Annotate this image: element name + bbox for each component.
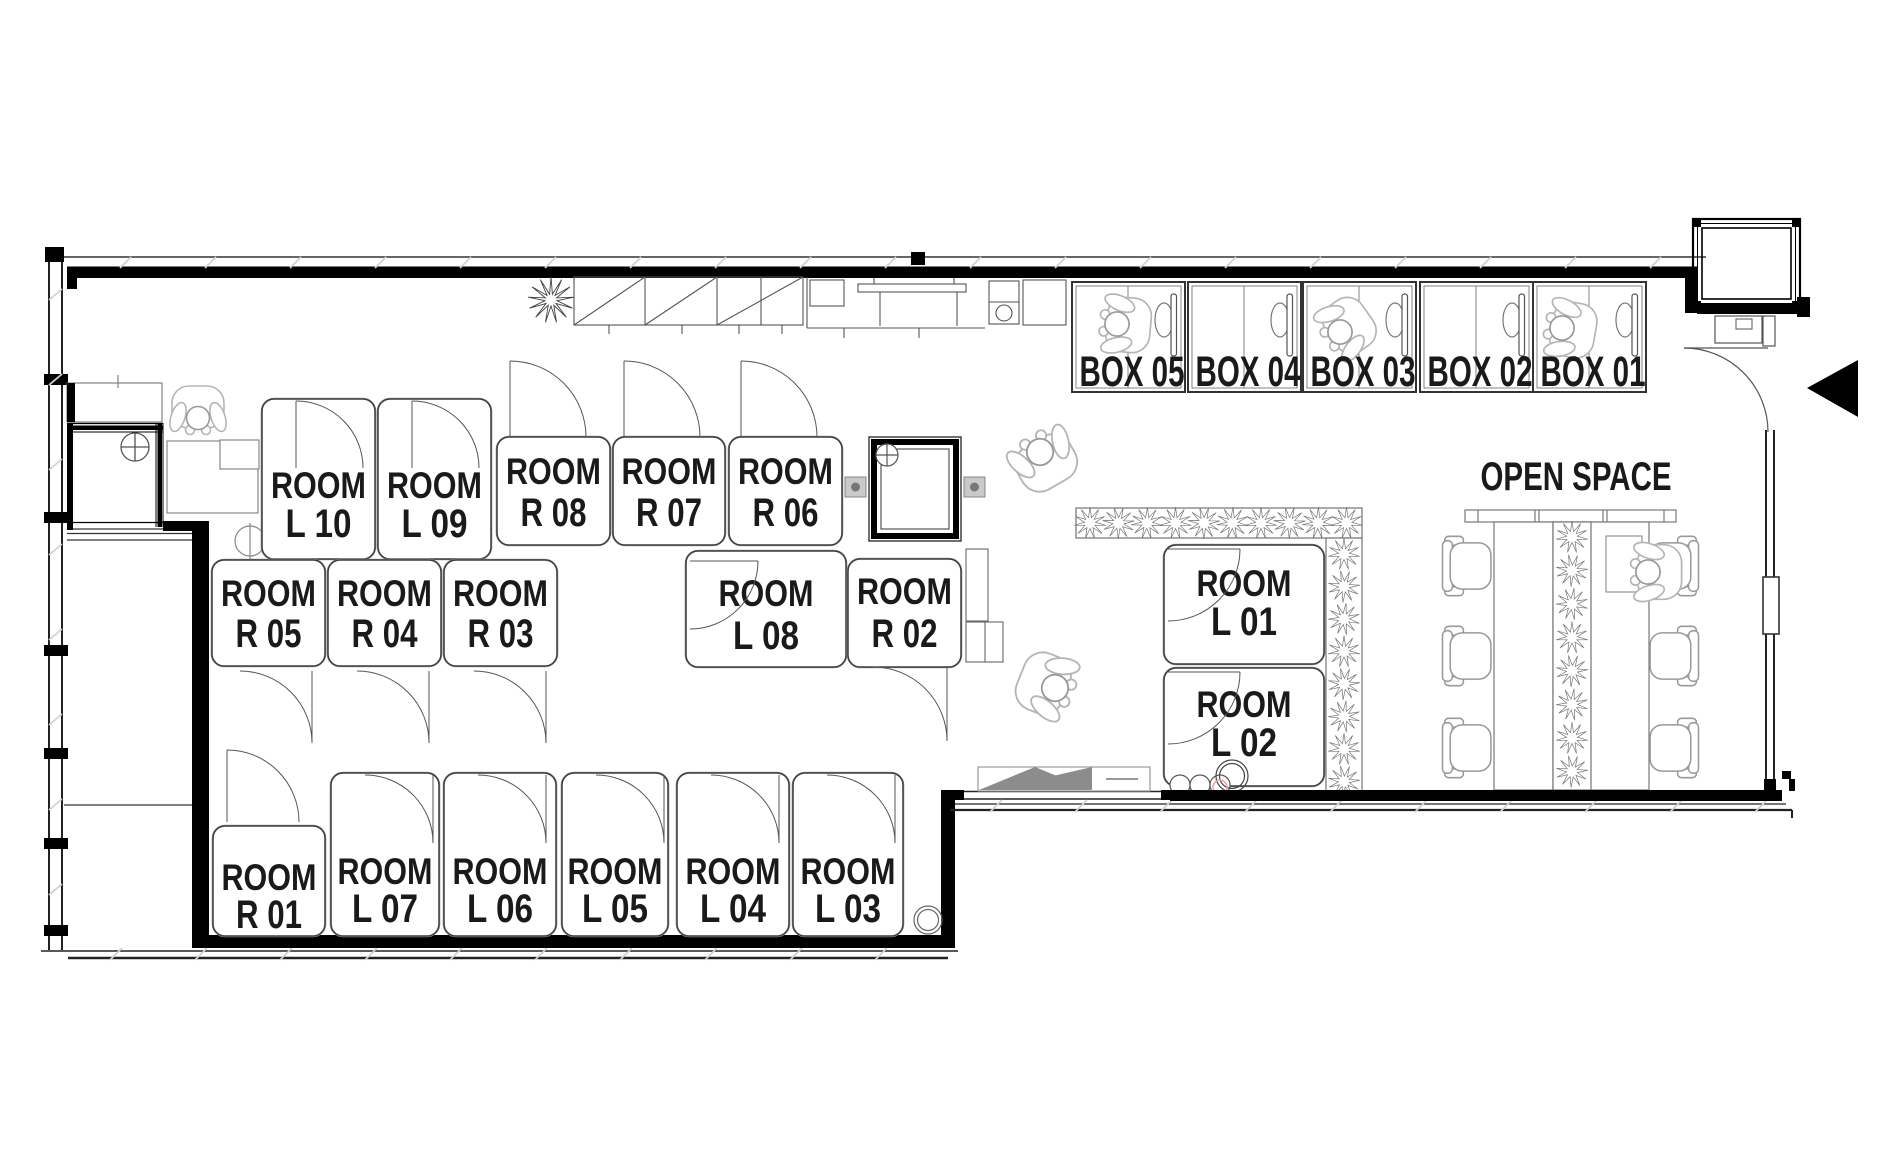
svg-text:L 07: L 07 [352,887,418,931]
svg-text:L 02: L 02 [1211,721,1277,765]
svg-text:ROOM: ROOM [222,857,317,898]
svg-text:R 04: R 04 [352,612,419,656]
svg-text:ROOM: ROOM [387,465,482,506]
svg-text:ROOM: ROOM [857,571,952,612]
svg-text:R 08: R 08 [521,491,587,535]
svg-text:L 05: L 05 [582,887,648,931]
svg-text:ROOM: ROOM [738,451,833,492]
svg-text:ROOM: ROOM [1197,563,1292,604]
svg-text:ROOM: ROOM [622,451,717,492]
svg-text:ROOM: ROOM [221,573,316,614]
svg-text:R 06: R 06 [753,491,819,535]
svg-text:L 09: L 09 [402,502,468,546]
svg-text:ROOM: ROOM [337,573,432,614]
svg-text:ROOM: ROOM [686,851,781,892]
svg-text:BOX 01: BOX 01 [1541,348,1646,396]
svg-text:ROOM: ROOM [506,451,601,492]
svg-text:ROOM: ROOM [1197,684,1292,725]
svg-text:R 03: R 03 [468,612,534,656]
svg-text:R 02: R 02 [872,612,938,656]
svg-text:BOX 03: BOX 03 [1311,348,1416,396]
svg-text:ROOM: ROOM [453,851,548,892]
svg-text:ROOM: ROOM [338,851,433,892]
svg-text:ROOM: ROOM [801,851,896,892]
svg-text:BOX 02: BOX 02 [1428,348,1533,396]
svg-text:R 07: R 07 [636,491,702,535]
svg-text:BOX 05: BOX 05 [1080,348,1185,396]
svg-text:R 01: R 01 [236,893,302,937]
svg-text:OPEN SPACE: OPEN SPACE [1481,455,1672,499]
svg-text:BOX 04: BOX 04 [1196,348,1301,396]
svg-text:ROOM: ROOM [453,573,548,614]
svg-text:R 05: R 05 [236,612,302,656]
svg-text:L 01: L 01 [1211,600,1277,644]
svg-text:L 08: L 08 [733,614,799,658]
svg-text:L 10: L 10 [286,502,352,546]
svg-text:ROOM: ROOM [719,573,814,614]
svg-text:L 03: L 03 [815,887,881,931]
svg-text:ROOM: ROOM [568,851,663,892]
svg-text:L 06: L 06 [467,887,533,931]
svg-text:ROOM: ROOM [271,465,366,506]
svg-text:L 04: L 04 [700,887,767,931]
